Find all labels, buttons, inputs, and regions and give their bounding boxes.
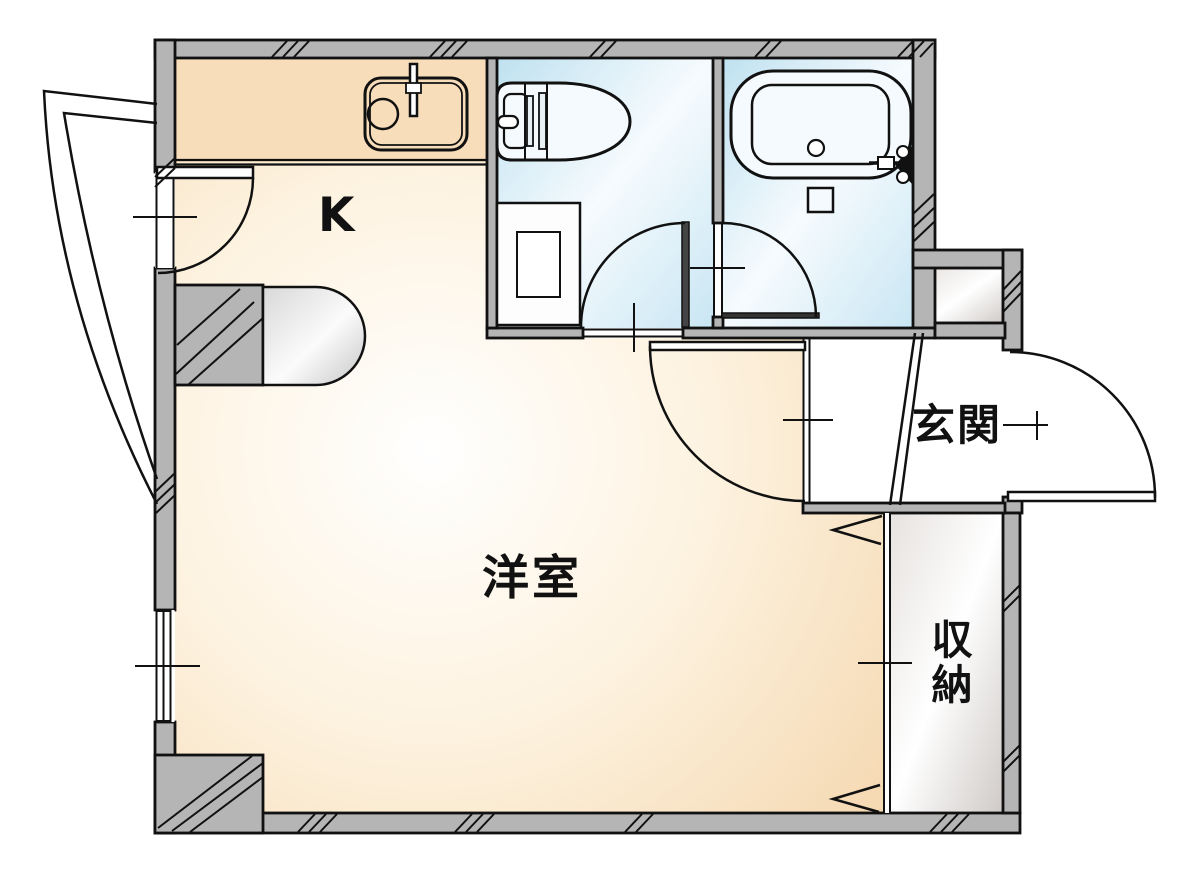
wall-toilet-bath-divider-upper (713, 58, 723, 223)
wall-left-mid (155, 268, 175, 610)
kitchen-label: K (318, 192, 354, 239)
pipe-space-box (925, 268, 1003, 323)
floor-plan-drawing (0, 0, 1200, 880)
wall-top (155, 40, 935, 58)
wall-below-toilet (487, 328, 583, 338)
wall-below-pipe-space (935, 323, 1005, 338)
shower-control-icon (808, 188, 833, 212)
kitchen-counter (175, 58, 487, 162)
toilet-cabinet-icon (497, 203, 580, 325)
wall-bottom (155, 813, 1020, 833)
wall-corner-bottom-left (155, 755, 263, 833)
floor-plan-stage: K 洋室 玄関 収納 (0, 0, 1200, 880)
exterior-double-door-swing-icon (44, 91, 157, 504)
storage-label: 収納 (927, 618, 968, 708)
wall-left-upper (155, 40, 175, 172)
kitchen-door-opening (155, 172, 175, 268)
wall-below-bath (683, 328, 935, 338)
toilet-icon (497, 83, 630, 160)
bath-doorway-frame (714, 223, 722, 317)
wall-right-storage (1003, 513, 1020, 813)
front-door-swing-icon (1008, 352, 1155, 501)
entrance-label: 玄関 (912, 405, 1002, 448)
wall-entrance-bottom (803, 503, 1005, 513)
wall-bath-right (913, 40, 935, 328)
western-room-label: 洋室 (482, 555, 582, 602)
counter-capsule-end (263, 287, 365, 385)
